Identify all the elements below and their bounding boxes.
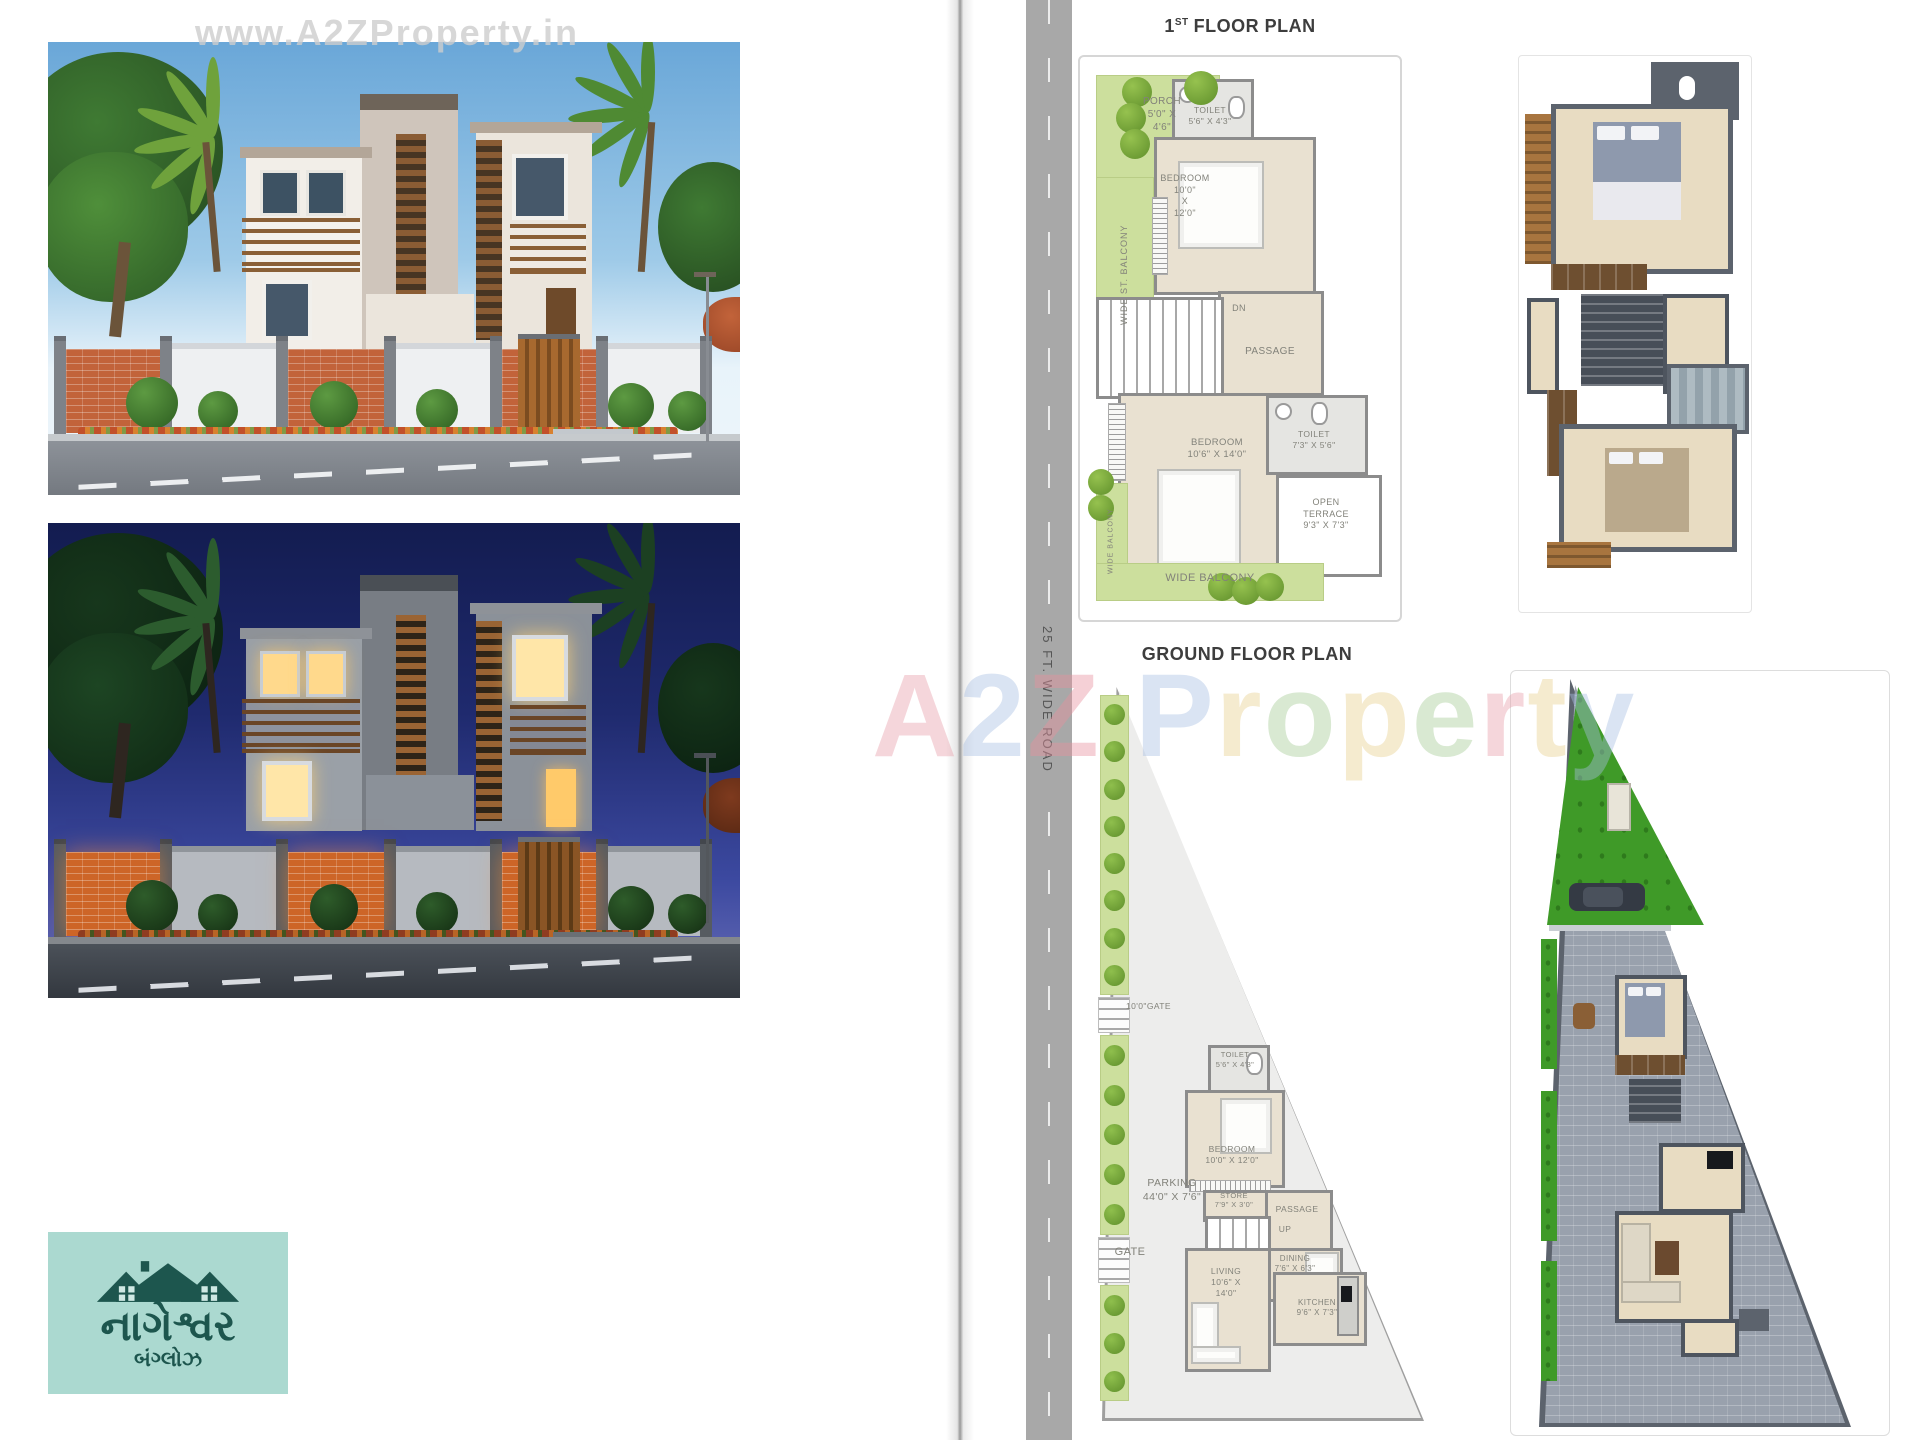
- topiary: [608, 383, 654, 429]
- chair-3d: [1573, 1003, 1595, 1029]
- open-terrace-label: OPENTERRACE9'3" X 7'3": [1280, 497, 1372, 532]
- wall-pillar: [490, 336, 502, 437]
- window-hatch: [1108, 403, 1126, 481]
- window: [260, 651, 300, 697]
- tree-row: [1100, 1035, 1129, 1235]
- palm-frond: [641, 42, 655, 112]
- up-label: UP: [1269, 1224, 1301, 1235]
- toilet2-label: TOILET7'3" X 5'6": [1268, 429, 1360, 451]
- passage-area: [1265, 1190, 1333, 1254]
- passage-label: PASSAGE: [1269, 1204, 1325, 1215]
- tree-icon: [1104, 704, 1125, 725]
- brochure-spread: www.A2ZProperty.in નાગેશ્વર બંગ્લોઝ 25 F…: [0, 0, 1920, 1440]
- garden-bench-3d: [1607, 783, 1631, 831]
- tower-band: [360, 575, 458, 591]
- street-lamp: [694, 272, 716, 277]
- slat-window: [396, 615, 426, 795]
- roof-slab: [240, 628, 372, 639]
- wall-pillar: [54, 839, 66, 940]
- tree-icon: [1104, 1204, 1125, 1225]
- pillow-icon: [1631, 126, 1659, 140]
- tree-icon: [1104, 779, 1125, 800]
- gate: [518, 837, 580, 934]
- wall-pillar: [596, 839, 608, 940]
- slat-panel: [476, 140, 502, 340]
- toilet-label: TOILET5'6" X 4'3": [1205, 1050, 1265, 1070]
- window: [306, 651, 346, 697]
- pillow-icon: [1609, 452, 1633, 464]
- slat-window: [396, 134, 426, 314]
- palm-frond: [641, 523, 655, 593]
- wall-pillar: [54, 336, 66, 437]
- gate-top-label: 10'0"GATE: [1126, 1001, 1198, 1012]
- slat-panel: [476, 621, 502, 821]
- deck-3d: [1547, 542, 1611, 568]
- ground-floor-plan-3d: [1510, 670, 1890, 1436]
- tree-icon: [1104, 853, 1125, 874]
- tree-icon: [1104, 816, 1125, 837]
- tree-icon: [1104, 1085, 1125, 1106]
- gate: [518, 334, 580, 431]
- st-balcony-label: WIDE ST. BALCONY: [1096, 183, 1152, 367]
- wardrobe-3d: [1551, 264, 1647, 290]
- door: [546, 769, 576, 827]
- toilet1-label: TOILET5'6" X 4'3": [1172, 105, 1248, 127]
- wardrobe-3d: [1615, 1055, 1685, 1075]
- watermark-url: www.A2ZProperty.in: [195, 12, 579, 54]
- pillow-icon: [1646, 987, 1661, 996]
- topiary: [310, 381, 358, 429]
- roof-slab: [470, 122, 602, 133]
- topiary: [198, 894, 238, 934]
- bed-icon: [1157, 469, 1241, 567]
- wall-pillar: [276, 839, 288, 940]
- title-text: FLOOR PLAN: [1194, 16, 1316, 36]
- topiary: [668, 391, 708, 431]
- dn-label: DN: [1222, 303, 1256, 315]
- balcony-rail: [242, 218, 360, 272]
- window: [260, 170, 300, 216]
- tree-row: [1100, 1285, 1129, 1401]
- gate-opening: [1098, 1237, 1130, 1283]
- wide-balcony-left-label: WIDE BALCONY: [1096, 487, 1126, 595]
- utility-3d: [1739, 1309, 1769, 1331]
- curb: [48, 434, 740, 441]
- topiary: [668, 894, 708, 934]
- window: [262, 280, 312, 340]
- balcony-rail: [510, 705, 586, 755]
- pillow-icon: [1597, 126, 1625, 140]
- wall-pillar: [490, 839, 502, 940]
- tree-icon: [1104, 1164, 1125, 1185]
- car-roof: [1583, 887, 1623, 907]
- topiary: [416, 389, 458, 431]
- topiary: [126, 880, 178, 932]
- planter-strip-3d: [1541, 1091, 1557, 1241]
- roof-slab: [240, 147, 372, 158]
- passage-label: PASSAGE: [1228, 345, 1312, 358]
- window: [512, 635, 568, 701]
- wc-icon: [1679, 76, 1695, 100]
- topiary: [310, 884, 358, 932]
- pillow-icon: [1628, 987, 1643, 996]
- balcony-3d: [1527, 298, 1559, 394]
- topiary: [608, 886, 654, 932]
- ground-floor-plan-2d: 10'0"GATE PARKING44'0" X 7'6" GATE TOILE…: [1090, 685, 1425, 1425]
- balcony-rail: [242, 699, 360, 753]
- first-floor-plan-2d: WIDE ST. BALCONY PORCH5'0" X4'6" TOILET5…: [1078, 55, 1402, 622]
- balcony-rail: [510, 224, 586, 274]
- logo-subtitle: બંગ્લોઝ: [134, 1348, 202, 1372]
- road-strip: 25 FT. WIDE ROAD: [1026, 0, 1072, 1440]
- title-number: 1: [1164, 16, 1175, 36]
- tree-icon: [1104, 1045, 1125, 1066]
- tree-icon: [1104, 1333, 1125, 1354]
- sofa-3d: [1621, 1281, 1681, 1303]
- roof-slab: [470, 603, 602, 614]
- road: [48, 439, 740, 495]
- road: [48, 942, 740, 998]
- logo-title: નાગેશ્વર: [101, 1304, 236, 1348]
- tree-icon: [1104, 741, 1125, 762]
- house-base: [366, 294, 474, 349]
- bedroom2-label: BEDROOM10'6" X 14'0": [1152, 437, 1282, 462]
- first-floor-plan-3d: [1518, 55, 1752, 613]
- palm-frond: [206, 538, 220, 618]
- window: [262, 761, 312, 821]
- curb: [48, 937, 740, 944]
- wide-balcony-bottom-label: WIDE BALCONY: [1130, 571, 1290, 585]
- first-floor-plan-title: 1STFLOOR PLAN: [1085, 16, 1395, 37]
- wall-pillar: [276, 336, 288, 437]
- planter-strip-3d: [1541, 939, 1557, 1069]
- tree-icon: [1104, 928, 1125, 949]
- roofs-icon: [93, 1258, 243, 1304]
- bed-sheet: [1593, 182, 1681, 220]
- staircase-3d: [1581, 294, 1663, 386]
- balcony-deck-3d: [1525, 114, 1551, 264]
- tree-icon: [1104, 965, 1125, 986]
- street-lamp: [694, 753, 716, 758]
- pillow-icon: [1639, 452, 1663, 464]
- palm-frond: [206, 57, 220, 137]
- tree-icon: [1104, 1124, 1125, 1145]
- planter-strip-3d: [1541, 1261, 1557, 1381]
- fence-3d: [1549, 925, 1671, 931]
- page-fold: [946, 0, 974, 1440]
- house-base: [366, 775, 474, 830]
- tree-icon: [1104, 1371, 1125, 1392]
- tree-icon: [1104, 890, 1125, 911]
- topiary: [198, 391, 238, 431]
- dining-label: DINING7'6" X 6'3": [1265, 1254, 1325, 1275]
- window: [306, 170, 346, 216]
- window: [512, 154, 568, 220]
- stove-3d: [1707, 1151, 1733, 1169]
- topiary: [126, 377, 178, 429]
- street-pole: [706, 277, 709, 442]
- entry-3d: [1681, 1319, 1739, 1357]
- wall-pillar: [384, 839, 396, 940]
- store-label: STORE7'9" X 3'0": [1203, 1191, 1265, 1209]
- sofa-icon: [1191, 1346, 1241, 1364]
- topiary: [416, 892, 458, 934]
- builder-logo: નાગેશ્વર બંગ્લોઝ: [48, 1232, 288, 1394]
- street-pole: [706, 758, 709, 923]
- bedroom1-label: BEDROOM10'0"X12'0": [1152, 173, 1218, 220]
- tower-band: [360, 94, 458, 110]
- road-label: 25 FT. WIDE ROAD: [1038, 616, 1057, 783]
- wall-pillar: [384, 336, 396, 437]
- wall-pillar: [596, 336, 608, 437]
- ground-floor-house: TOILET5'6" X 4'3" BEDROOM10'0" X 12'0" S…: [1185, 1040, 1413, 1410]
- bedroom-label: BEDROOM10'0" X 12'0": [1187, 1144, 1277, 1166]
- coffee-table-3d: [1655, 1241, 1679, 1275]
- tree-icon: [1104, 1295, 1125, 1316]
- ground-floor-plan-title: GROUND FLOOR PLAN: [1092, 644, 1402, 665]
- staircase-3d: [1629, 1079, 1681, 1123]
- tree-row: [1100, 695, 1129, 995]
- title-superscript: ST: [1175, 17, 1189, 28]
- gate-label: GATE: [1104, 1245, 1156, 1259]
- exterior-render-day: [48, 42, 740, 495]
- living-label: LIVING10'6" X14'0": [1195, 1266, 1257, 1299]
- exterior-render-night: [48, 523, 740, 998]
- kitchen-label: KITCHEN9'6" X 7'3": [1281, 1298, 1353, 1319]
